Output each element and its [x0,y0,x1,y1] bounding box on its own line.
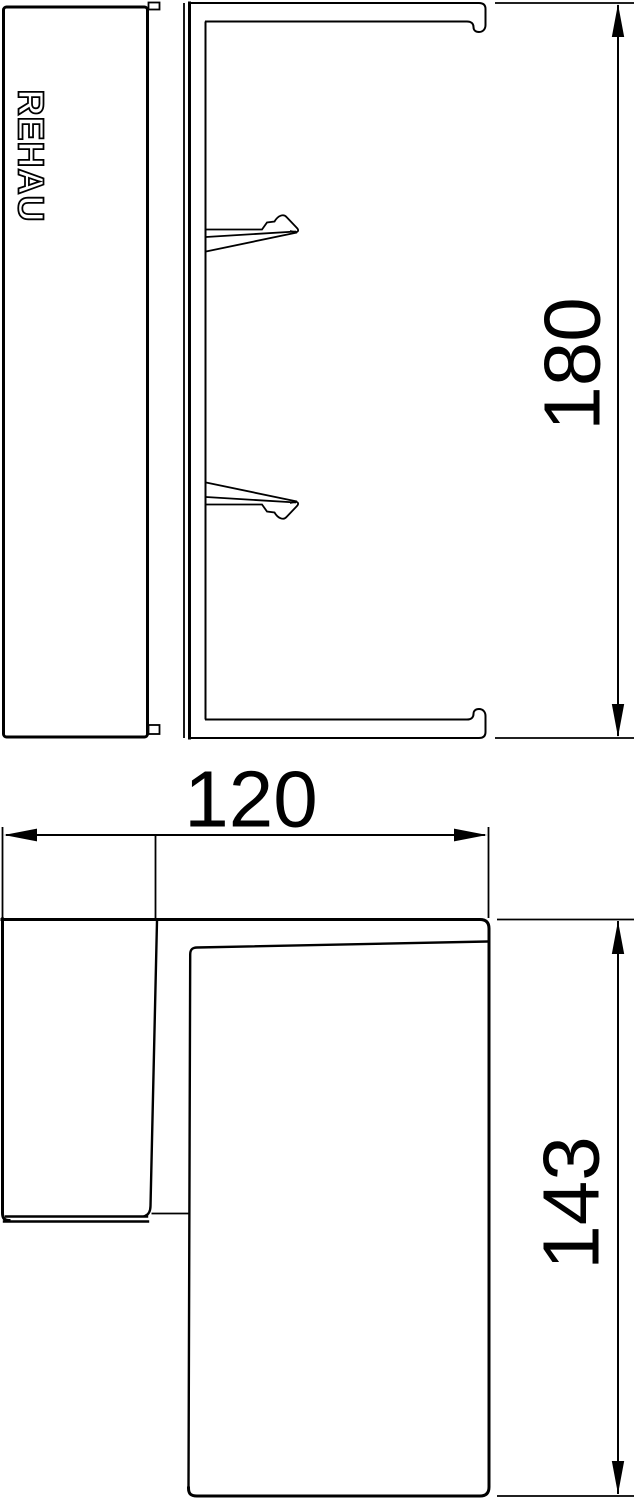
dimension-side-height: 180 [495,3,634,738]
body-inner-edge [189,942,488,1489]
mounting-tab-top [149,3,160,10]
cover-left-edge [3,919,10,1221]
side-view: REHAU [4,3,486,739]
body-outline [2,920,489,1497]
dimension-front-height: 143 [497,920,634,1497]
dim-120-arrow-left [4,829,37,842]
mounting-tab-bottom [149,725,160,734]
latch-upper-barb [206,215,298,232]
dim-120-value: 120 [184,755,317,844]
dim-120-arrow-right [454,829,487,842]
cover-slant-edge [145,921,157,1216]
profile-bottom-arm [188,709,486,738]
latch-upper [206,215,298,251]
rehau-logo-text: REHAU [11,89,52,222]
dimension-front-width: 120 [3,755,489,919]
dim-180-arrow-up [612,4,624,37]
latch-lower-barb [206,502,298,519]
technical-drawing: REHAU [0,0,635,1500]
dim-180-value: 180 [528,297,617,430]
dim-143-arrow-down [612,1461,624,1494]
front-view [2,919,489,1496]
dim-180-arrow-down [612,704,624,737]
dim-143-arrow-up [612,921,624,954]
latch-lower [206,483,298,519]
dim-143-value: 143 [527,1136,616,1269]
technical-drawing-page: REHAU [0,0,635,1500]
profile-top-arm [188,3,486,32]
